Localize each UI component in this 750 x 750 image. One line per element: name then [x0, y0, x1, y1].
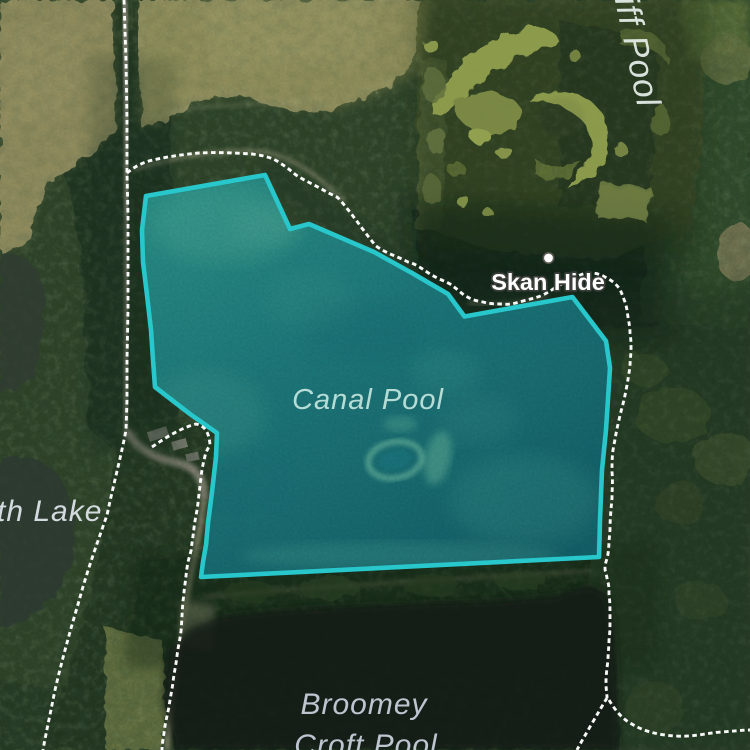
svg-text:Canal Pool: Canal Pool — [292, 384, 444, 416]
svg-text:rth Lake: rth Lake — [0, 495, 102, 528]
svg-text:Skan Hide: Skan Hide — [491, 269, 605, 295]
svg-text:Broomey: Broomey — [300, 688, 428, 721]
svg-text:Croft Pool: Croft Pool — [294, 729, 438, 750]
